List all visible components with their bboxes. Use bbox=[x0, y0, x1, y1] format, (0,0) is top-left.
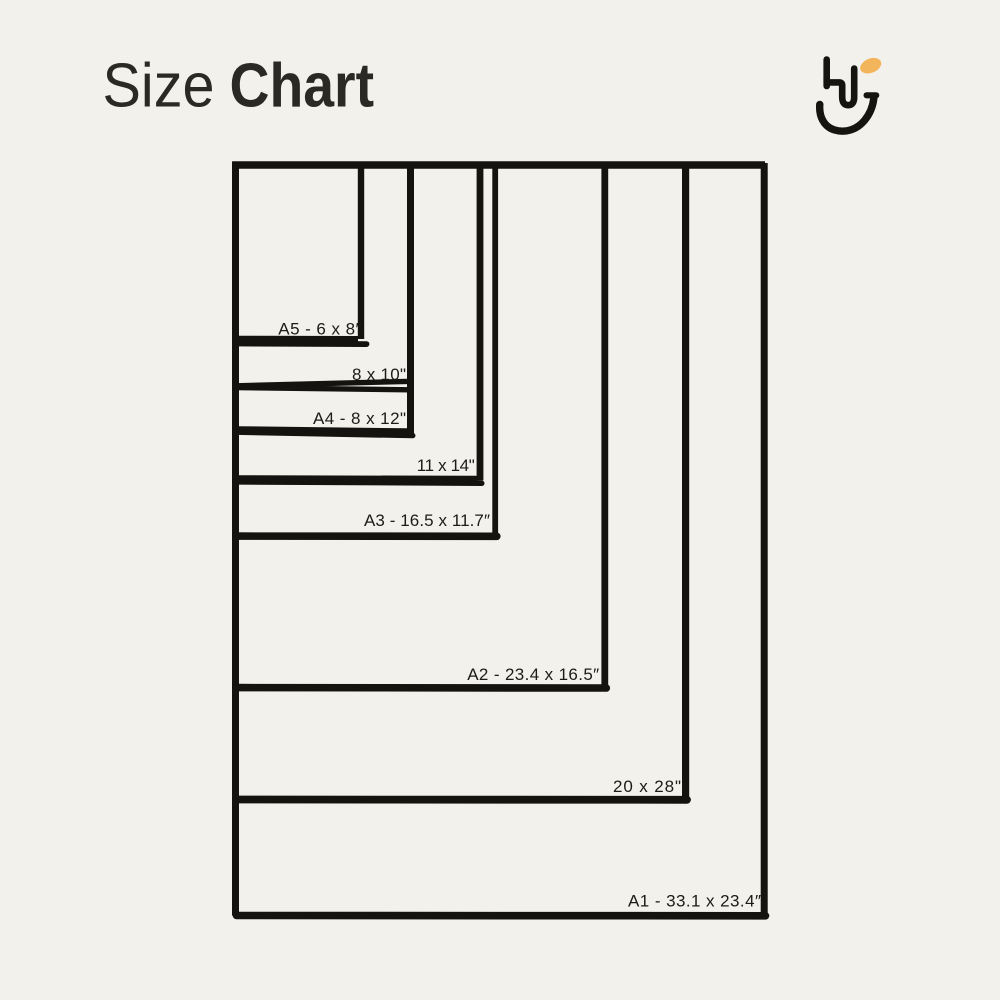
svg-text:Size: Size bbox=[103, 52, 215, 121]
svg-text:Chart: Chart bbox=[230, 52, 375, 121]
svg-text:8 x 10": 8 x 10" bbox=[352, 365, 406, 384]
svg-text:A2 - 23.4 x 16.5″: A2 - 23.4 x 16.5″ bbox=[467, 665, 599, 684]
svg-text:A4 - 8 x 12": A4 - 8 x 12" bbox=[313, 409, 406, 428]
svg-text:11 x 14": 11 x 14" bbox=[417, 456, 475, 475]
svg-text:A5 - 6 x 8″: A5 - 6 x 8″ bbox=[278, 320, 361, 339]
svg-text:20 x 28": 20 x 28" bbox=[613, 777, 681, 796]
svg-text:A3 - 16.5 x 11.7″: A3 - 16.5 x 11.7″ bbox=[364, 511, 490, 530]
svg-text:A1 - 33.1 x 23.4″: A1 - 33.1 x 23.4″ bbox=[628, 892, 761, 911]
